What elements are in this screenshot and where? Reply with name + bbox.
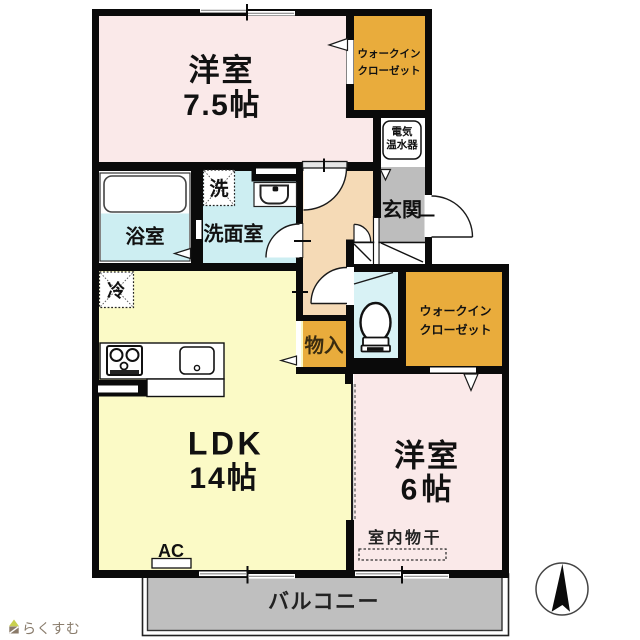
svg-text:冷: 冷 [107,280,125,301]
svg-text:洗面室: 洗面室 [204,222,264,246]
svg-text:室内物干: 室内物干 [368,528,442,547]
svg-text:電気: 電気 [392,125,413,138]
svg-text:物入: 物入 [304,334,344,357]
svg-text:バルコニー: バルコニー [268,591,380,614]
svg-text:クローゼット: クローゼット [358,64,421,77]
svg-text:洋室: 洋室 [394,439,460,474]
svg-text:温水器: 温水器 [386,138,418,151]
svg-text:14帖: 14帖 [189,462,258,495]
svg-text:ウォークイン: ウォークイン [419,304,491,318]
svg-text:7.5帖: 7.5帖 [183,89,261,122]
svg-text:6帖: 6帖 [401,474,456,507]
svg-text:らくすむ: らくすむ [22,621,80,637]
svg-text:浴室: 浴室 [125,225,164,248]
svg-text:玄関: 玄関 [382,198,422,222]
svg-text:洋室: 洋室 [189,53,255,88]
svg-text:洗: 洗 [209,177,228,200]
svg-text:ウォークイン: ウォークイン [358,48,421,60]
svg-text:クローゼット: クローゼット [419,322,491,337]
svg-text:LDK: LDK [188,426,264,462]
